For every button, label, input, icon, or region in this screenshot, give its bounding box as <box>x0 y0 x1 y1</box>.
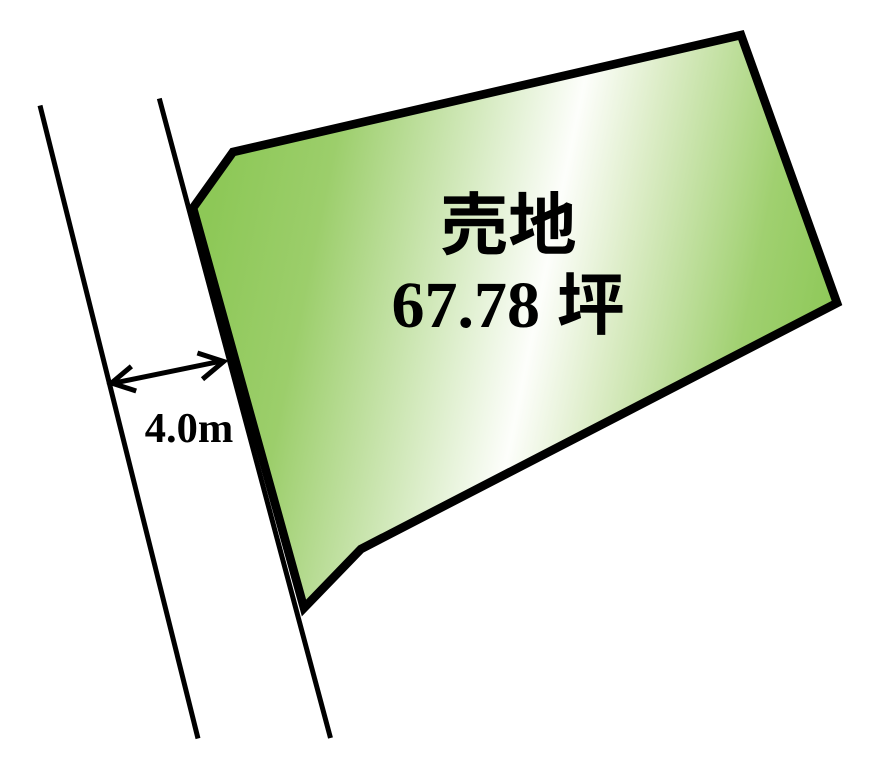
svg-text:67.78: 67.78 <box>392 269 541 342</box>
svg-text:4.0m: 4.0m <box>145 405 234 452</box>
